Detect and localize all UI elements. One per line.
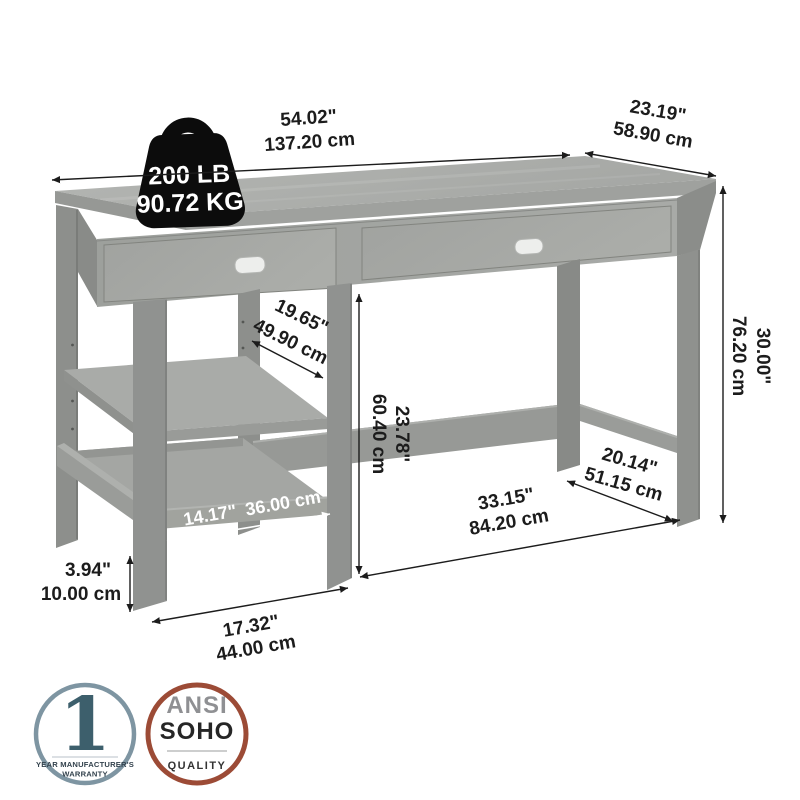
dim-width-in: 54.02" xyxy=(280,106,338,131)
dim-kneehole-height-in: 23.78" xyxy=(391,406,412,463)
side-stretcher xyxy=(580,404,683,455)
dim-kneehole-height-cm: 60.40 cm xyxy=(368,394,389,474)
dim-open-shelf-depth: 19.65" 49.90 cm xyxy=(250,295,332,378)
center-post xyxy=(327,283,352,590)
weight-capacity-badge: 200 LB 90.72 KG xyxy=(133,123,246,229)
dim-foot-height-cm: 10.00 cm xyxy=(41,584,121,605)
dim-side-stretcher: 20.14" 51.15 cm xyxy=(567,444,673,521)
weight-kilograms: 90.72 KG xyxy=(136,187,244,219)
quality-line3: QUALITY xyxy=(168,760,227,772)
dim-height: 30.00" 76.20 cm xyxy=(723,186,773,523)
front-left-post xyxy=(133,299,167,611)
back-right-leg xyxy=(557,259,580,472)
dim-foot-height-in: 3.94" xyxy=(65,560,111,581)
dim-height-cm: 76.20 cm xyxy=(728,316,749,396)
warranty-caption-line1: YEAR MANUFACTURER'S xyxy=(36,760,134,769)
quality-line2: SOHO xyxy=(160,718,235,745)
ansi-soho-badge: ANSI SOHO QUALITY xyxy=(148,685,246,783)
drawer-knob xyxy=(514,238,543,255)
warranty-badge: 1 YEAR MANUFACTURER'S WARRANTY xyxy=(36,682,134,783)
middle-shelf xyxy=(64,356,328,443)
front-right-leg xyxy=(677,249,700,527)
warranty-caption-line2: WARRANTY xyxy=(62,770,107,779)
diagram-canvas: 200 LB 90.72 KG 54.02" 137.20 cm 23.19" … xyxy=(0,0,800,800)
dim-kneehole-width: 33.15" 84.20 cm xyxy=(360,484,680,577)
warranty-number: 1 xyxy=(59,682,111,768)
desk-dimension-diagram: 200 LB 90.72 KG 54.02" 137.20 cm 23.19" … xyxy=(0,0,800,800)
dim-foot-height: 3.94" 10.00 cm xyxy=(41,556,130,612)
dim-pedestal-width: 17.32" 44.00 cm xyxy=(152,588,348,666)
drawer-knob xyxy=(234,256,265,274)
quality-line1: ANSI xyxy=(166,692,227,719)
dim-width-cm: 137.20 cm xyxy=(264,129,356,156)
dim-height-in: 30.00" xyxy=(752,328,773,385)
